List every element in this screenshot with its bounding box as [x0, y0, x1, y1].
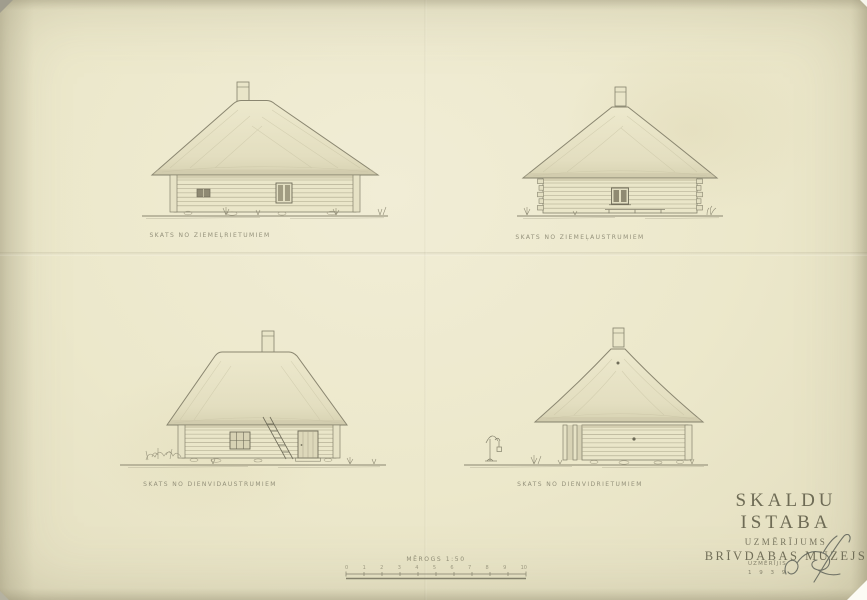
elevation-drawing-southwest	[462, 325, 712, 475]
scale-tick-label: 7	[468, 565, 471, 571]
corner-log-ends	[178, 425, 185, 458]
paper-corner-tear	[0, 591, 9, 600]
scale-tick-label: 1	[363, 565, 366, 571]
scale-tick-label: 2	[380, 565, 383, 571]
door-step	[296, 458, 321, 461]
elevation-caption-southwest: SKATS NO DIENVIDRIETUMIEM	[500, 481, 660, 488]
scale-label: MĒROGS 1:50	[338, 556, 534, 563]
elevation-drawing-southeast	[118, 328, 388, 478]
chimney	[237, 82, 249, 102]
fold-crease-vertical	[424, 0, 427, 600]
fold-crease-horizontal	[0, 252, 867, 256]
scale-tick-label: 5	[433, 565, 436, 571]
roof	[523, 107, 717, 178]
corner-log-ends	[333, 425, 340, 458]
wall	[563, 425, 692, 460]
chimney	[613, 328, 624, 347]
corner-log-ends	[170, 175, 177, 212]
elevation-drawing-northwest	[140, 76, 390, 226]
foundation-stones	[590, 460, 684, 464]
porch-post	[573, 425, 577, 460]
paper-corner-cut	[860, 0, 867, 7]
chimney	[615, 87, 626, 106]
paper-edge-shadow-bottom	[0, 588, 867, 600]
porch-post	[563, 425, 567, 460]
scale-block: MĒROGS 1:50 0 1 2 3 4 5 6 7 8 9 10	[338, 556, 534, 581]
scale-tick-label: 9	[503, 565, 506, 571]
elevation-drawing-northeast	[515, 84, 725, 224]
chimney	[262, 331, 274, 352]
paper-corner-tear	[0, 0, 13, 13]
scale-tick-label: 6	[450, 565, 453, 571]
corner-log-ends	[685, 425, 692, 460]
elevation-caption-northeast: SKATS NO ZIEMEĻAUSTRUMIEM	[500, 234, 660, 241]
scale-tick-label: 10	[521, 565, 527, 571]
well-post	[485, 436, 502, 461]
corner-log-ends	[353, 175, 360, 212]
wall-knot	[632, 437, 635, 440]
window	[609, 188, 631, 205]
door	[296, 431, 321, 461]
window	[276, 183, 292, 203]
window	[230, 432, 250, 449]
elevation-caption-southeast: SKATS NO DIENVIDAUSTRUMIEM	[130, 481, 290, 488]
paper-corner-cut	[847, 580, 867, 600]
small-window	[197, 189, 210, 197]
scale-tick-label: 8	[486, 565, 489, 571]
elevation-caption-northwest: SKATS NO ZIEMEĻRIETUMIEM	[130, 232, 290, 239]
paper-edge-shadow-top	[0, 0, 867, 10]
ground-line	[120, 457, 386, 468]
scale-tick-label: 4	[415, 565, 418, 571]
roof	[152, 101, 378, 176]
scale-tick-label: 0	[345, 565, 348, 571]
paper-edge-shadow-left	[0, 0, 34, 600]
smoke-hole	[617, 362, 620, 365]
scale-tick-label: 3	[398, 565, 401, 571]
drawing-title: SKALDU ISTABA	[688, 490, 867, 534]
scale-bar	[345, 571, 527, 581]
roof	[535, 349, 703, 422]
bushes	[146, 448, 181, 460]
roof	[167, 352, 347, 425]
